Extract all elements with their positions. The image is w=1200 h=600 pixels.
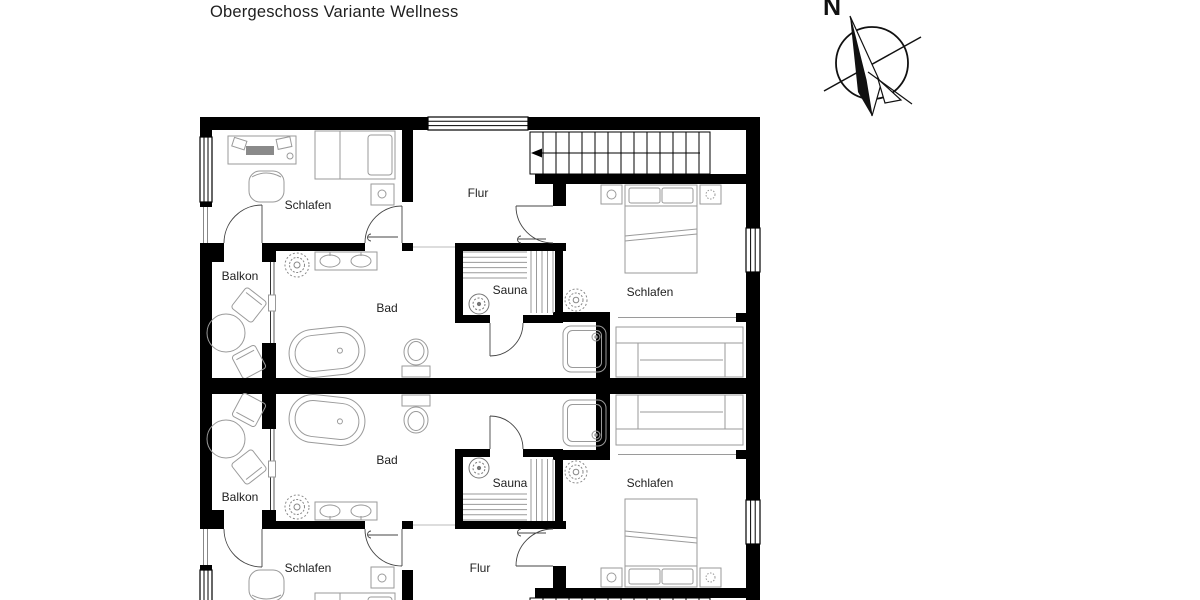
room-label-bad-bottom: Bad bbox=[376, 453, 397, 467]
desk-icon bbox=[228, 136, 296, 164]
room-label-flur-top: Flur bbox=[468, 186, 489, 200]
plant-icon bbox=[565, 289, 587, 311]
double-sink-icon bbox=[315, 252, 377, 270]
room-label-balkon-bottom: Balkon bbox=[222, 490, 259, 504]
bed-single-icon bbox=[315, 131, 395, 179]
compass-rose-icon bbox=[824, 16, 921, 116]
window-top-wall bbox=[428, 117, 528, 130]
toilet-icon bbox=[402, 339, 430, 377]
room-label-sauna-top: Sauna bbox=[493, 283, 528, 297]
nightstand-icon bbox=[700, 185, 721, 204]
compass-north-label: N bbox=[823, 0, 841, 22]
floor-plan-drawing bbox=[0, 0, 1200, 600]
balcony-chair-icon bbox=[231, 287, 267, 323]
window-left-wall bbox=[200, 137, 212, 202]
room-label-schlafen-top-left: Schlafen bbox=[285, 198, 332, 212]
nightstand-icon bbox=[371, 184, 394, 205]
room-label-schlafen-bottom-left: Schlafen bbox=[285, 561, 332, 575]
door-balcony bbox=[224, 205, 262, 243]
balcony-chair-icon bbox=[231, 344, 266, 379]
plan-title: Obergeschoss Variante Wellness bbox=[210, 3, 458, 22]
room-label-bad-top: Bad bbox=[376, 301, 397, 315]
apartment-unit-top bbox=[200, 117, 761, 394]
room-label-flur-bottom: Flur bbox=[470, 561, 491, 575]
window-right-wall bbox=[746, 228, 760, 272]
sauna-bench-lines bbox=[463, 251, 553, 313]
door-flur-schlafen bbox=[516, 206, 553, 243]
room-label-schlafen-bottom-right: Schlafen bbox=[627, 476, 674, 490]
french-door-left-wall bbox=[200, 207, 213, 243]
wardrobe-icon bbox=[616, 327, 743, 377]
sauna-heater-icon bbox=[469, 294, 489, 314]
floor-plan-page: Obergeschoss Variante Wellness N Schlafe… bbox=[0, 0, 1200, 600]
staircase bbox=[530, 132, 710, 174]
door-sauna bbox=[490, 323, 523, 356]
balcony-table-icon bbox=[207, 314, 245, 352]
room-label-schlafen-top-right: Schlafen bbox=[627, 285, 674, 299]
plant-icon bbox=[285, 253, 309, 277]
room-label-balkon-top: Balkon bbox=[222, 269, 259, 283]
nightstand-icon bbox=[601, 185, 622, 204]
bathtub-icon bbox=[287, 324, 368, 380]
armchair-icon bbox=[249, 171, 284, 202]
bed-double-icon bbox=[625, 185, 697, 273]
sliding-door-symbol bbox=[368, 234, 546, 243]
room-label-sauna-bottom: Sauna bbox=[493, 476, 528, 490]
doors bbox=[224, 205, 553, 356]
balcony-glazing bbox=[269, 262, 276, 343]
